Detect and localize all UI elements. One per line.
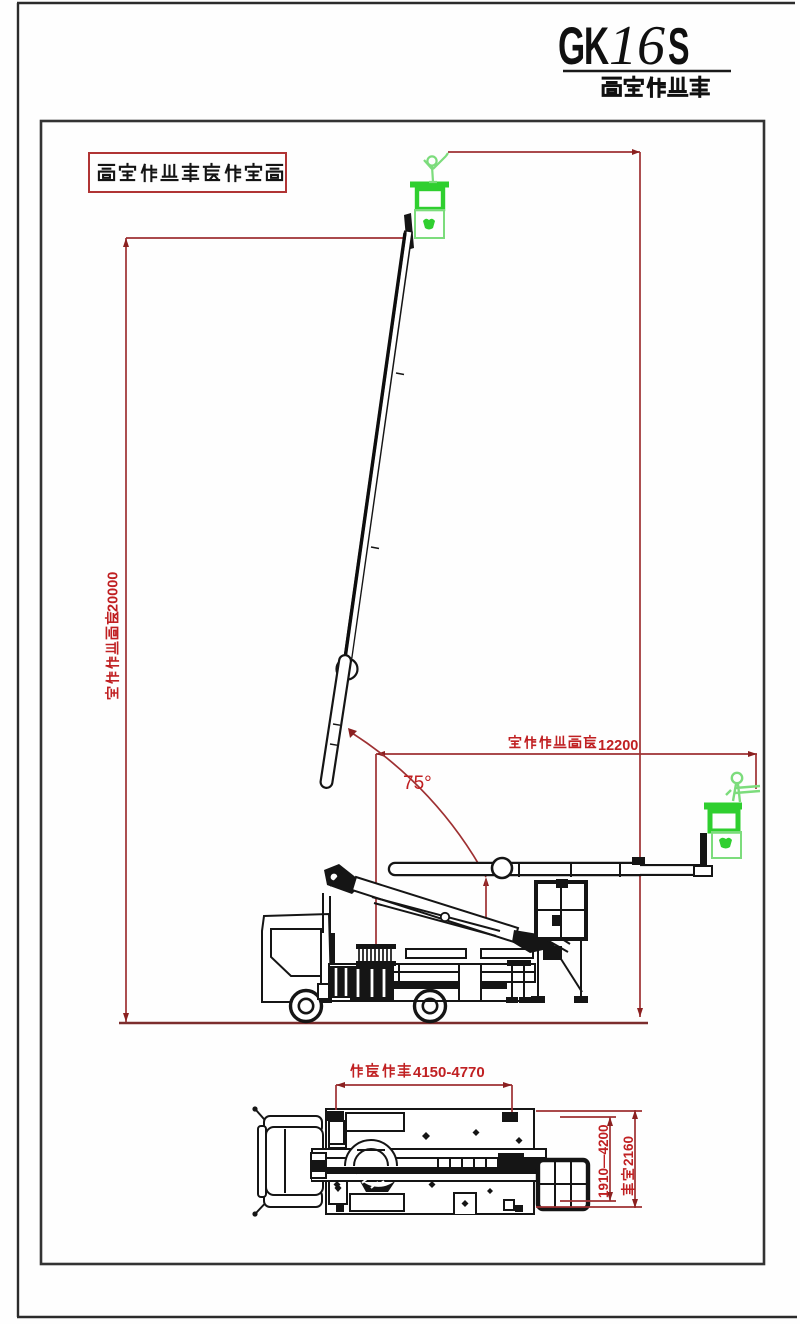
svg-text:16: 16 [609, 15, 665, 77]
svg-text:1910—4200: 1910—4200 [596, 1124, 611, 1198]
svg-text:4150-4770: 4150-4770 [413, 1064, 485, 1081]
svg-text:20000: 20000 [106, 572, 122, 612]
svg-text:GK: GK [558, 16, 609, 76]
svg-text:75°: 75° [403, 773, 432, 794]
svg-text:2160: 2160 [621, 1136, 636, 1166]
svg-text:S: S [668, 18, 690, 76]
svg-text:12200: 12200 [598, 738, 638, 754]
